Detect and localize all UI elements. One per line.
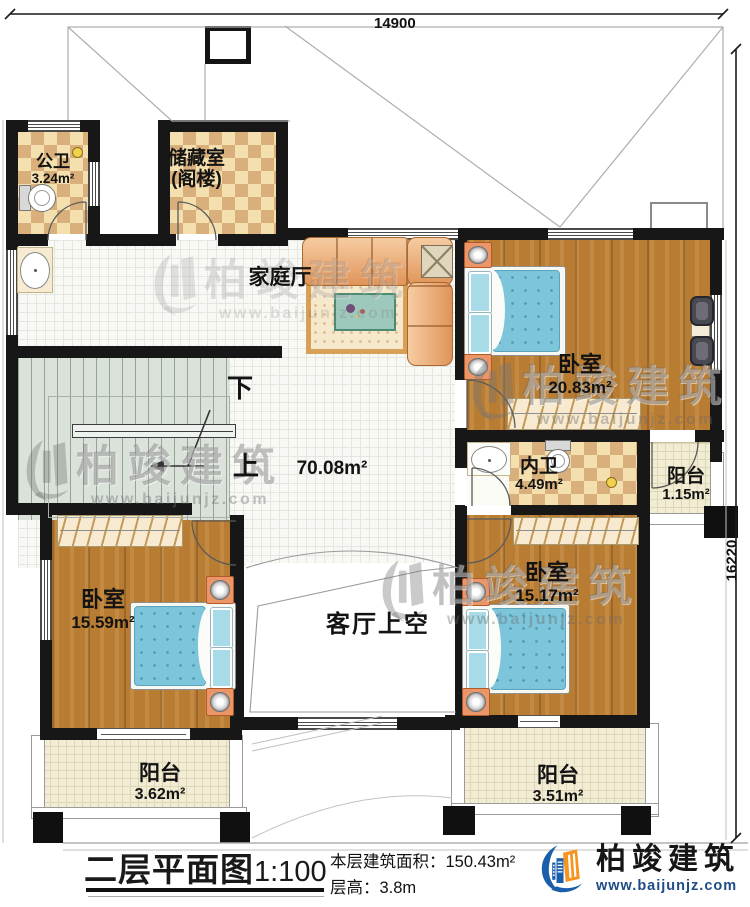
- room-area: 20.83m²: [538, 378, 622, 397]
- floor-area-value: 150.43m²: [446, 853, 516, 871]
- room-area: 3.24m²: [18, 171, 88, 186]
- pillow: [211, 648, 232, 688]
- nightstand: [464, 242, 492, 268]
- nightstand: [464, 354, 492, 380]
- room-area: 15.17m²: [500, 586, 594, 605]
- room-name: 阳台: [516, 764, 600, 788]
- room-name: 公卫: [18, 152, 88, 171]
- room-name: 阳台: [646, 466, 726, 487]
- floor-height-stat: 层高：3.8m: [330, 874, 416, 898]
- sofa: [407, 282, 453, 366]
- toilet-bowl: [28, 184, 56, 212]
- bed-duvet: [490, 608, 566, 690]
- window: [28, 120, 80, 132]
- title-underline-thin: [88, 896, 324, 897]
- wall: [558, 715, 650, 728]
- dimension-right: 16220: [724, 531, 741, 591]
- column: [621, 806, 651, 835]
- wall: [158, 234, 176, 246]
- room-name: 内卫: [498, 456, 580, 477]
- nightstand: [206, 576, 234, 604]
- living-void-floor: [246, 563, 458, 717]
- roof-chimney: [205, 26, 251, 64]
- pillow: [469, 272, 491, 313]
- room-label-living-void: 客厅上空: [316, 612, 440, 639]
- wall: [455, 505, 465, 515]
- stairs-down-label: 下: [224, 374, 256, 403]
- wardrobe: [57, 515, 183, 547]
- room-name: 卧室: [538, 353, 622, 378]
- room-name: 储藏室: [168, 148, 225, 169]
- dimension-right-value: 16220: [724, 540, 741, 582]
- stairs-inner-outline: [48, 396, 230, 518]
- chair: [690, 296, 714, 326]
- wall: [445, 715, 520, 728]
- wall: [18, 346, 282, 358]
- room-area: 70.08m²: [294, 458, 370, 479]
- wash-basin: [20, 252, 50, 289]
- window: [88, 162, 100, 206]
- wardrobe: [513, 517, 639, 545]
- brand-url: www.baijunjz.com: [596, 878, 740, 894]
- column: [33, 812, 63, 843]
- wall: [40, 728, 97, 740]
- chair: [690, 336, 714, 366]
- pillow: [467, 651, 488, 692]
- wall: [218, 234, 288, 246]
- room-name: 客厅上空: [316, 612, 440, 639]
- parapet: [31, 807, 247, 819]
- wall: [230, 717, 300, 730]
- wall: [511, 505, 638, 515]
- wall: [158, 120, 288, 132]
- room-label-bedroom2: 卧室 15.59m²: [56, 588, 150, 632]
- column: [443, 806, 475, 835]
- ceiling-lamp: [606, 477, 617, 488]
- floor-height-value: 3.8m: [380, 879, 417, 897]
- stairs-up-label: 上: [230, 452, 262, 481]
- brand-name: 柏竣建筑: [596, 845, 740, 875]
- room-area: 1.15m²: [646, 487, 726, 504]
- drawing-title-text: 二层平面图: [84, 851, 254, 888]
- dimension-top-value: 14900: [374, 15, 416, 32]
- floor-area-stat: 本层建筑面积：150.43m²: [330, 848, 515, 872]
- pillow: [467, 610, 488, 651]
- stairs-handrail: [72, 424, 236, 438]
- window: [548, 228, 633, 240]
- floor-area-label: 本层建筑面积：: [330, 853, 446, 871]
- room-label-bedroom3: 卧室 15.17m²: [500, 561, 594, 605]
- room-label-family-hall-area: 70.08m²: [294, 458, 370, 479]
- pillow: [469, 313, 491, 354]
- room-label-balcony-left: 阳台 3.62m²: [118, 762, 202, 803]
- wall: [710, 228, 722, 295]
- room-label-balcony-right: 阳台 3.51m²: [516, 764, 600, 805]
- nightstand: [206, 688, 234, 716]
- brand-logo: 柏竣建筑 www.baijunjz.com: [536, 842, 740, 896]
- room-area: 15.59m²: [56, 613, 150, 632]
- room-label-public-bath: 公卫 3.24m²: [18, 152, 88, 186]
- room-label-family-hall: 家庭厅: [238, 266, 322, 290]
- window: [40, 560, 52, 640]
- column: [220, 812, 250, 843]
- balcony-sliding-door: [518, 715, 560, 728]
- room-label-storage: 储藏室 (阁楼): [168, 148, 225, 191]
- pillow: [211, 608, 232, 648]
- floor-height-label: 层高：: [330, 879, 380, 897]
- room-label-ensuite-bath: 内卫 4.49m²: [498, 456, 580, 494]
- nightstand: [462, 688, 490, 716]
- room-area: 3.62m²: [118, 786, 202, 804]
- brand-logo-icon: [536, 842, 590, 896]
- balcony-sliding-door: [97, 728, 190, 740]
- room-label-bedroom1: 卧室 20.83m²: [538, 353, 622, 397]
- wall: [695, 430, 724, 442]
- wall: [40, 515, 52, 560]
- room-area: 4.49m²: [498, 477, 580, 494]
- stairs-up-text: 上: [233, 451, 259, 481]
- nightstand: [462, 578, 490, 606]
- room-subname: (阁楼): [168, 169, 225, 190]
- title-underline: [86, 888, 324, 892]
- floor-plan: 柏竣建筑 www.baijunjz.com 柏竣建筑 www.baijunjz.…: [0, 0, 750, 907]
- wall: [710, 370, 722, 462]
- coffee-table: [334, 293, 396, 331]
- dimension-top: 14900: [374, 15, 416, 32]
- room-name: 家庭厅: [238, 266, 322, 290]
- wall: [6, 234, 48, 246]
- drawing-title: 二层平面图1:100: [84, 843, 327, 891]
- wall: [6, 120, 18, 246]
- wardrobe: [507, 398, 641, 430]
- drawing-scale: 1:100: [254, 856, 327, 888]
- room-name: 阳台: [118, 762, 202, 786]
- room-name: 卧室: [500, 561, 594, 586]
- stairs-down-text: 下: [227, 373, 253, 403]
- window: [298, 717, 397, 730]
- wall: [40, 640, 52, 740]
- room-area: 3.51m²: [516, 788, 600, 806]
- room-name: 卧室: [56, 588, 150, 613]
- side-table: [421, 245, 453, 278]
- room-label-balcony-small: 阳台 1.15m²: [646, 466, 726, 504]
